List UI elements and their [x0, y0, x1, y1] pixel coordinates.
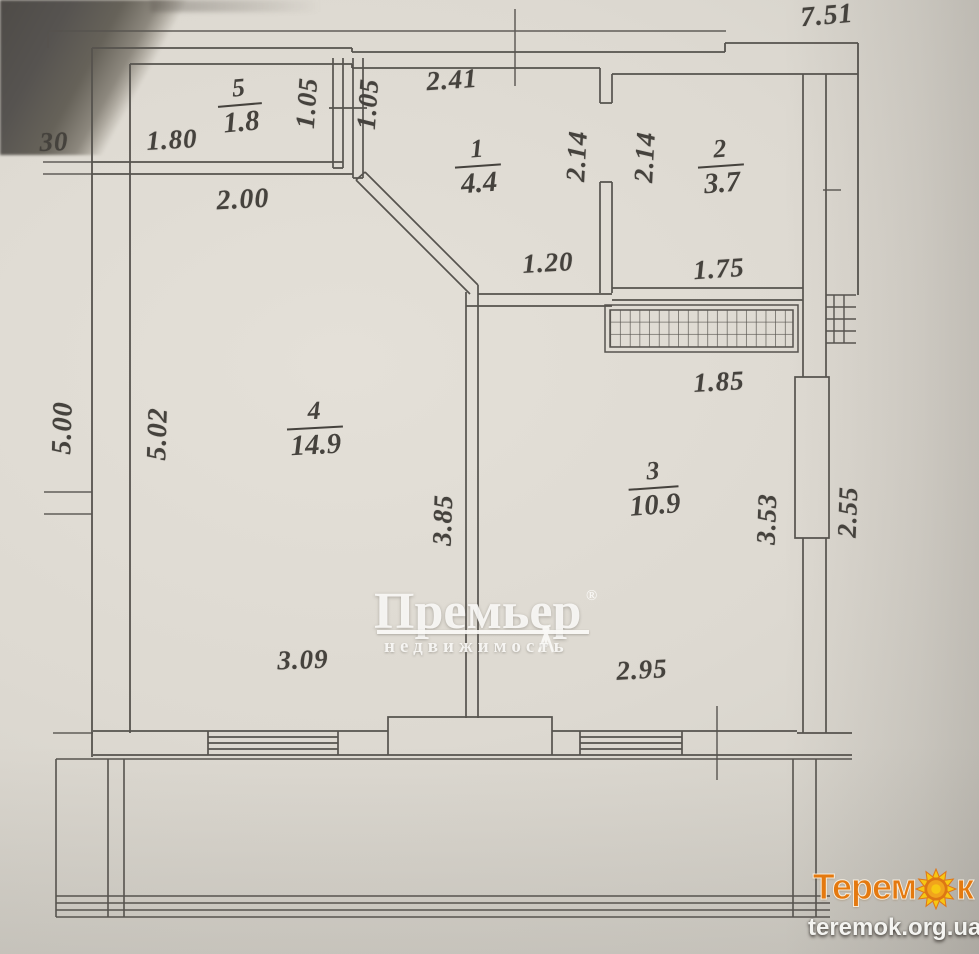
dim-room3-depth: 3.53: [753, 493, 782, 545]
dim-hall-opening: 1.20: [522, 248, 575, 278]
room-label-3: 3 10.9: [627, 456, 682, 521]
dim-room2-width: 1.75: [692, 254, 745, 285]
dim-hall-width: 2.41: [425, 65, 478, 96]
teremok-watermark: Терем к: [808, 862, 978, 942]
room-area: 1.8: [222, 106, 261, 138]
room-number: 3: [645, 458, 660, 485]
balcony: [56, 759, 852, 917]
dim-room5-depth: 1.05: [292, 76, 323, 129]
teremok-logo-text-left: Терем: [813, 866, 916, 908]
dim-room5-width: 1.80: [146, 125, 199, 155]
dim-right-side: 2.55: [834, 486, 863, 538]
teremok-logo-text-right: к: [956, 866, 973, 908]
dim-room2-depth: 2.14: [630, 131, 660, 184]
dim-room3-bottom: 2.95: [616, 655, 669, 685]
dim-hall-depth: 2.14: [562, 130, 592, 183]
bottom-wall-windows: [93, 717, 852, 755]
right-wall: [795, 74, 829, 733]
sun-icon: [915, 868, 957, 910]
room-number: 1: [469, 136, 484, 163]
dim-left-side-outer: 5.00: [48, 401, 78, 455]
room-area: 4.4: [460, 168, 498, 199]
dim-loggia-grill-width: 1.85: [693, 367, 746, 397]
room-label-5: 5 1.8: [215, 73, 264, 139]
room-number: 4: [307, 398, 321, 425]
room-area: 14.9: [290, 430, 342, 462]
loggia-grill-hatch: [605, 295, 856, 352]
room-number: 5: [231, 75, 246, 102]
room-label-4: 4 14.9: [285, 397, 344, 462]
room-area: 10.9: [629, 489, 682, 521]
premier-subtitle-text: недвижимость: [384, 636, 569, 658]
dim-vent-shaft-depth: 1.05: [353, 77, 384, 130]
room-number: 2: [712, 136, 727, 163]
dim-overall-width: 7.51: [799, 0, 854, 32]
teremok-website-text: teremok.org.ua: [808, 914, 978, 942]
room-label-1: 1 4.4: [453, 134, 503, 199]
dim-room4-bottom: 3.09: [277, 646, 329, 675]
teremok-logo: Терем к: [808, 862, 978, 912]
premier-watermark: Премьер ® недвижимость: [360, 586, 620, 666]
registered-trademark-icon: ®: [586, 588, 597, 605]
dim-corridor-width: 2.00: [216, 185, 270, 216]
dim-left-side-inner: 5.02: [143, 407, 173, 461]
floorplan-photo: 7.51 30 1.80 1.05 1.05 2.41 2.14 2.14 1.…: [0, 0, 979, 954]
dim-partition-length: 3.85: [429, 494, 458, 546]
room-label-2: 2 3.7: [696, 134, 746, 199]
room-area: 3.7: [703, 168, 741, 199]
dim-left-wall-offset: 30: [39, 128, 69, 156]
